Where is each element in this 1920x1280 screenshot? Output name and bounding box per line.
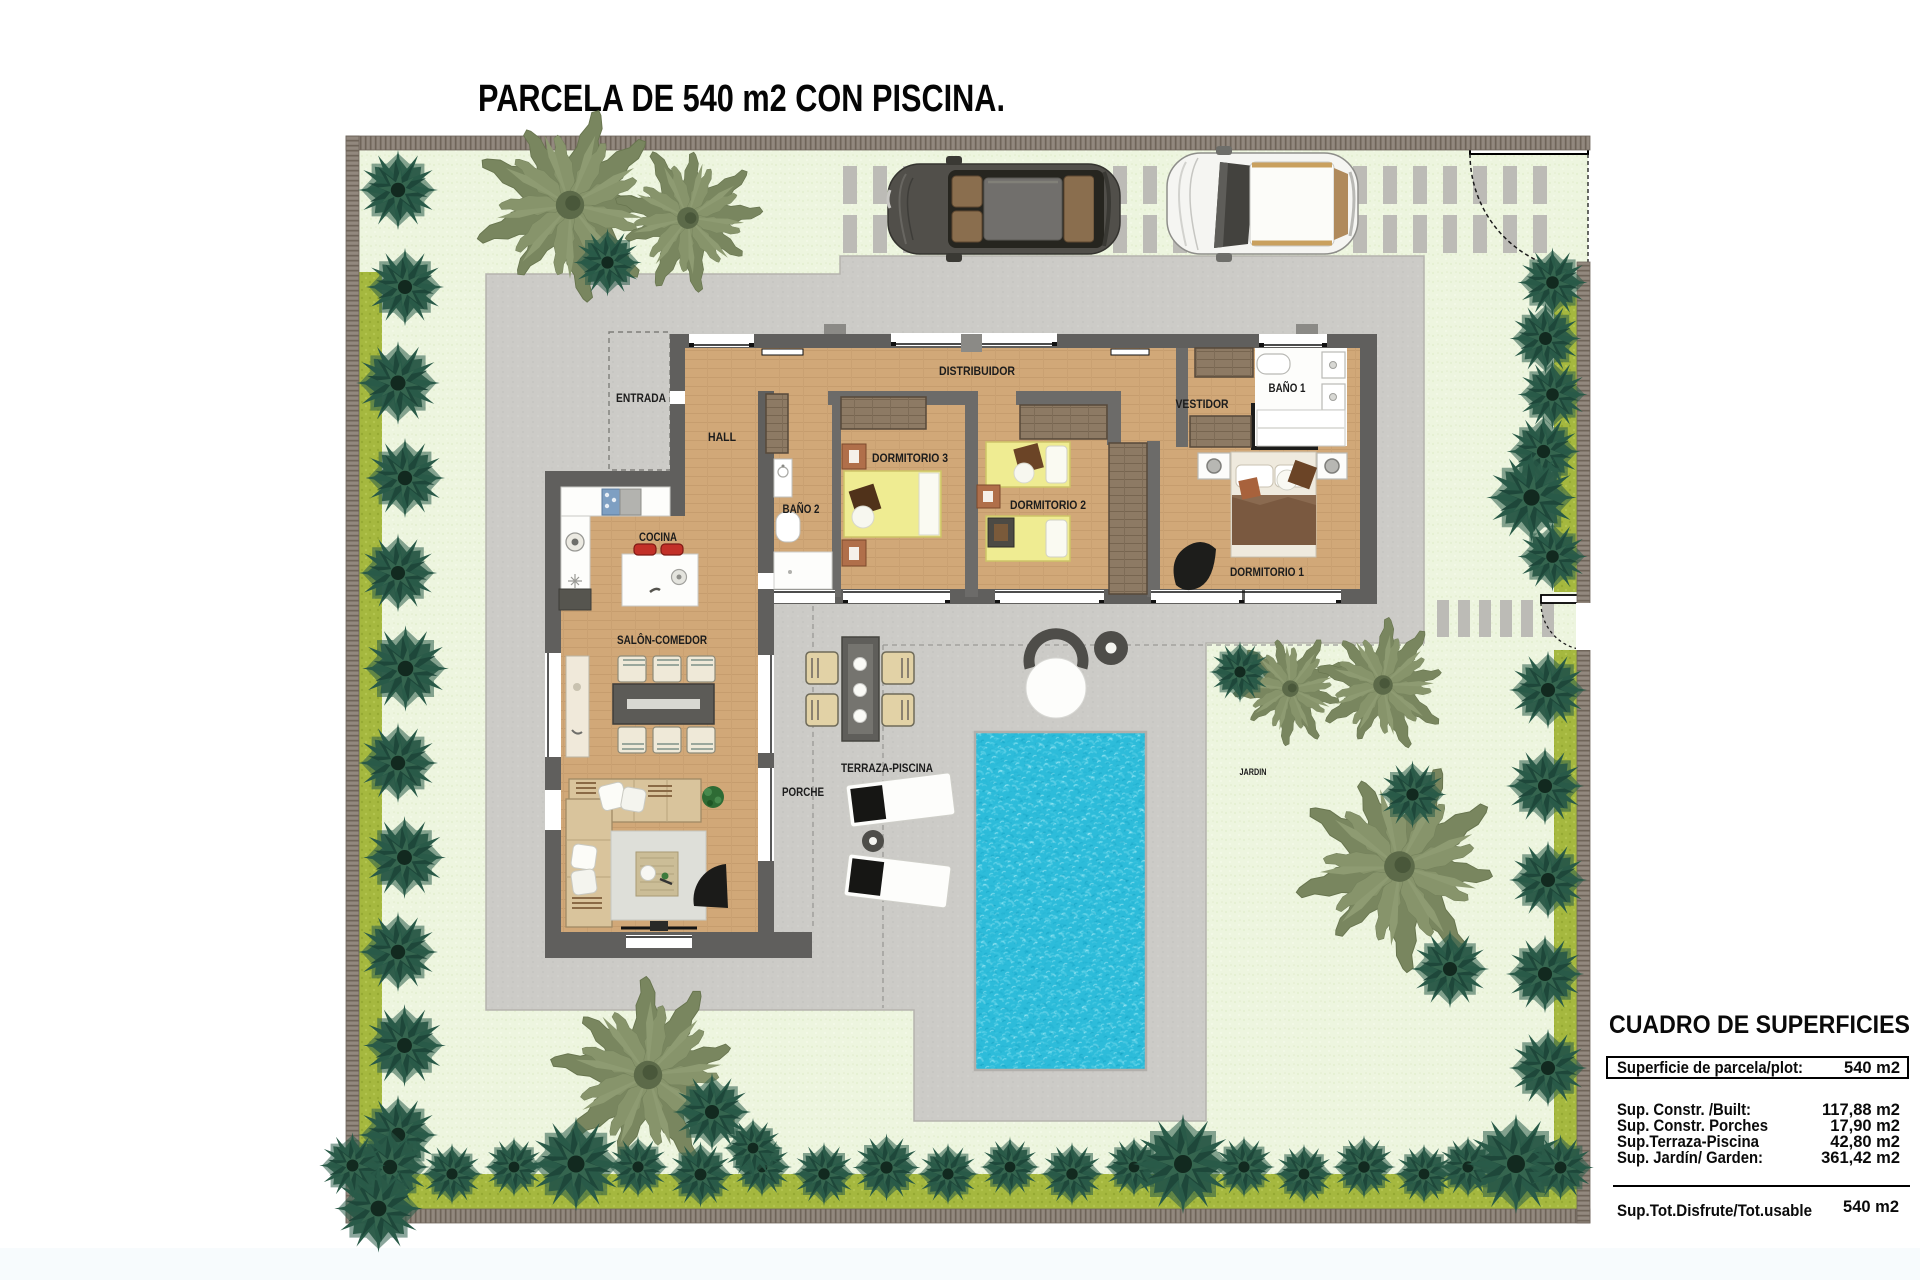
svg-text:HALL: HALL [708, 432, 736, 444]
svg-text:540 m2: 540 m2 [1844, 1059, 1900, 1077]
svg-text:540 m2: 540 m2 [1843, 1198, 1899, 1216]
svg-text:DORMITORIO 2: DORMITORIO 2 [1010, 500, 1086, 512]
svg-text:CUADRO DE SUPERFICIES: CUADRO DE SUPERFICIES [1609, 1011, 1910, 1039]
svg-text:TERRAZA-PISCINA: TERRAZA-PISCINA [841, 763, 933, 775]
svg-text:ENTRADA: ENTRADA [616, 393, 666, 405]
svg-text:BAÑO 2: BAÑO 2 [783, 503, 820, 516]
svg-text:Superficie de parcela/plot:: Superficie de parcela/plot: [1617, 1059, 1803, 1077]
svg-text:DORMITORIO 3: DORMITORIO 3 [872, 453, 948, 465]
svg-text:Sup. Jardín/ Garden:: Sup. Jardín/ Garden: [1617, 1149, 1763, 1167]
svg-text:BAÑO 1: BAÑO 1 [1269, 382, 1307, 395]
svg-text:JARDIN: JARDIN [1240, 767, 1267, 778]
svg-text:COCINA: COCINA [639, 532, 677, 544]
svg-text:SALÔN-COMEDOR: SALÔN-COMEDOR [617, 634, 708, 647]
svg-text:Sup.Tot.Disfrute/Tot.usable: Sup.Tot.Disfrute/Tot.usable [1617, 1202, 1812, 1220]
svg-text:DISTRIBUIDOR: DISTRIBUIDOR [939, 366, 1016, 378]
svg-text:PARCELA DE 540 m2 CON PISCINA.: PARCELA DE 540 m2 CON PISCINA. [478, 78, 1005, 120]
svg-text:361,42 m2: 361,42 m2 [1821, 1149, 1900, 1167]
svg-text:DORMITORIO 1: DORMITORIO 1 [1230, 567, 1305, 579]
svg-text:VESTIDOR: VESTIDOR [1176, 399, 1230, 411]
svg-text:PORCHE: PORCHE [782, 787, 824, 799]
